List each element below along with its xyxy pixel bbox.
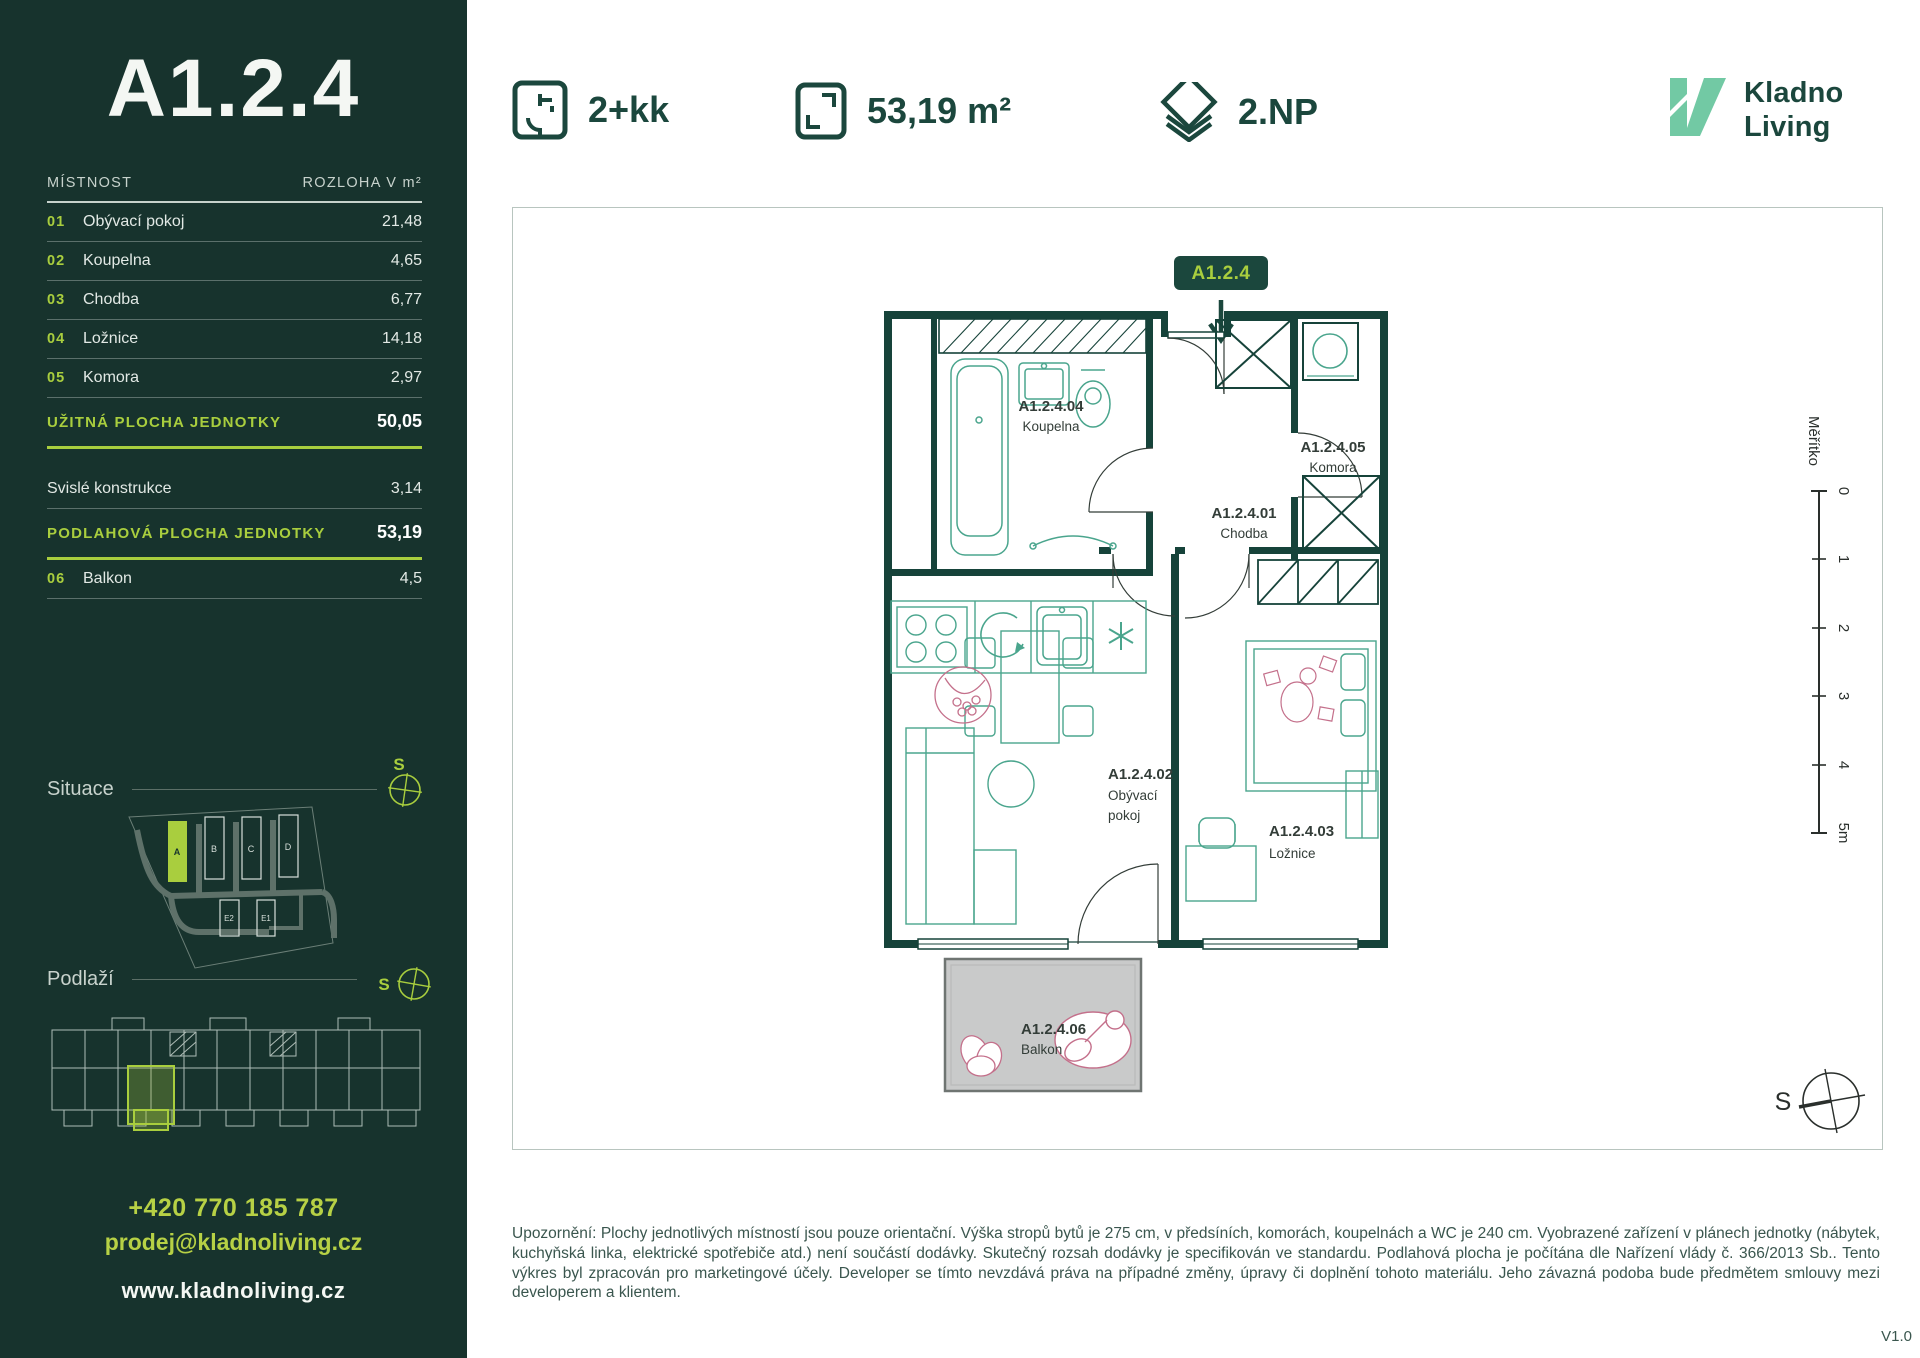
- svg-text:4: 4: [1835, 761, 1852, 769]
- brand-line1: Kladno: [1744, 76, 1843, 110]
- table-row: 03 Chodba 6,77: [47, 281, 422, 320]
- row-name: Obývací pokoj: [83, 213, 184, 231]
- floor-outline: [52, 1018, 420, 1126]
- floor-area-table: Svislé konstrukce 3,14 PODLAHOVÁ PLOCHA …: [47, 470, 422, 599]
- bathtub: [951, 359, 1008, 555]
- stairwell-hatch: [170, 1032, 296, 1056]
- svg-text:B: B: [211, 844, 217, 854]
- svg-text:A1.2.4.05: A1.2.4.05: [1300, 439, 1365, 456]
- dishwasher-symbol: [981, 613, 1025, 657]
- area-value: 53,19 m²: [867, 90, 1011, 132]
- svg-text:Balkon: Balkon: [1021, 1042, 1062, 1057]
- svg-text:Koupelna: Koupelna: [1022, 419, 1080, 434]
- svg-text:Ložnice: Ložnice: [1269, 846, 1316, 861]
- bedroom-wardrobe: [1346, 771, 1378, 838]
- row-num: 05: [47, 370, 83, 386]
- site-roads: [137, 820, 334, 938]
- row-name: Koupelna: [83, 252, 151, 270]
- table-row: 05 Komora 2,97: [47, 359, 422, 398]
- svg-text:A1.2.4.04: A1.2.4.04: [1018, 398, 1084, 415]
- floorplan-canvas: A1.2.4: [512, 207, 1883, 1150]
- row-num: 06: [47, 571, 83, 587]
- bed: [1246, 641, 1376, 791]
- email-link[interactable]: prodej@kladnoliving.cz: [0, 1229, 467, 1256]
- fridge-snowflake: [1109, 622, 1133, 650]
- website-link[interactable]: www.kladnoliving.cz: [0, 1278, 467, 1304]
- area-icon: [795, 82, 847, 140]
- highlighted-unit: [128, 1066, 174, 1130]
- vertical-structures-row: Svislé konstrukce 3,14: [47, 470, 422, 509]
- svg-text:2: 2: [1835, 624, 1852, 632]
- version-label: V1.0: [1881, 1328, 1912, 1345]
- balcony-door: [1068, 864, 1158, 944]
- unit-badge: A1.2.4: [1174, 256, 1268, 340]
- svg-text:A1.2.4: A1.2.4: [1192, 263, 1251, 284]
- total-label: UŽITNÁ PLOCHA JEDNOTKY: [47, 414, 281, 431]
- row-num: 04: [47, 331, 83, 347]
- washing-machine: [1303, 323, 1358, 380]
- brand-logo: Kladno Living: [1668, 76, 1843, 144]
- situace-compass-icon: S: [378, 752, 430, 808]
- windows: [918, 939, 1358, 949]
- row-num: 01: [47, 214, 83, 230]
- floor-area-total-row: PODLAHOVÁ PLOCHA JEDNOTKY 53,19: [47, 509, 422, 560]
- scale-bar: Měřítko 0 1 2 3 4 5m: [1805, 416, 1852, 843]
- podlazi-compass-icon: S: [376, 966, 438, 1002]
- svg-text:A1.2.4.06: A1.2.4.06: [1021, 1021, 1086, 1038]
- row-name: Ložnice: [83, 330, 138, 348]
- situace-label: Situace: [47, 778, 114, 801]
- site-plan: A B C D E2 E1: [115, 800, 350, 980]
- svg-text:A1.2.4.03: A1.2.4.03: [1269, 823, 1334, 840]
- svg-text:A1.2.4.01: A1.2.4.01: [1211, 505, 1276, 522]
- situace-section-header: Situace: [47, 778, 377, 801]
- layout-value: 2+kk: [588, 89, 669, 131]
- disclaimer-text: Upozornění: Plochy jednotlivých místnost…: [512, 1224, 1880, 1303]
- svg-text:S: S: [378, 975, 389, 994]
- row-value: 2,97: [391, 369, 422, 387]
- svg-text:3: 3: [1835, 692, 1852, 700]
- person-guitar-decor: [1055, 1011, 1131, 1068]
- floor-spec: 2.NP: [1160, 82, 1318, 142]
- svg-text:A1.2.4.02: A1.2.4.02: [1108, 766, 1173, 783]
- table-header: MÍSTNOST ROZLOHA V m²: [47, 175, 422, 203]
- phone-number[interactable]: +420 770 185 787: [0, 1194, 467, 1223]
- apartment-floorplan: A1.2.4: [513, 208, 1882, 1149]
- row-value: 6,77: [391, 291, 422, 309]
- svg-text:S: S: [1775, 1088, 1792, 1116]
- kitchen-counter: [891, 601, 1146, 673]
- sofa: [906, 728, 1016, 924]
- divider: [132, 979, 357, 980]
- svg-text:pokoj: pokoj: [1108, 808, 1140, 823]
- area-spec: 53,19 m²: [795, 82, 1011, 140]
- svg-text:5m: 5m: [1835, 823, 1852, 844]
- balcony-row: 06 Balkon 4,5: [47, 560, 422, 599]
- row-name: Komora: [83, 369, 139, 387]
- hall-wardrobe: [1216, 320, 1291, 388]
- col-area-header: ROZLOHA V m²: [302, 175, 422, 191]
- layout-spec: 2+kk: [512, 80, 669, 140]
- row-value: 4,65: [391, 252, 422, 270]
- svg-text:E2: E2: [224, 914, 234, 923]
- compass-icon: S: [1775, 1069, 1865, 1133]
- total-value: 53,19: [377, 522, 422, 543]
- komora-storage: [1303, 476, 1380, 550]
- kitchen-sink: [1037, 607, 1087, 665]
- podlazi-label: Podlaží: [47, 968, 114, 991]
- podlazi-section-header: Podlaží: [47, 968, 357, 991]
- layers-icon: [1160, 82, 1218, 142]
- svg-text:Měřítko: Měřítko: [1805, 416, 1822, 466]
- table-row: 04 Ložnice 14,18: [47, 320, 422, 359]
- brand-line2: Living: [1744, 110, 1843, 144]
- kladno-living-logo-icon: [1668, 76, 1728, 138]
- row-value: 14,18: [382, 330, 422, 348]
- svg-text:Komora: Komora: [1309, 460, 1357, 475]
- total-label: PODLAHOVÁ PLOCHA JEDNOTKY: [47, 525, 326, 542]
- svg-text:A: A: [174, 847, 181, 857]
- svg-text:D: D: [285, 842, 292, 852]
- svg-text:Obývací: Obývací: [1108, 788, 1158, 803]
- stove: [897, 607, 967, 667]
- total-value: 50,05: [377, 411, 422, 432]
- unit-title: A1.2.4: [0, 42, 467, 136]
- svg-text:1: 1: [1835, 555, 1852, 563]
- row-name: Chodba: [83, 291, 139, 309]
- row-value: 21,48: [382, 213, 422, 231]
- svg-text:Chodba: Chodba: [1220, 526, 1268, 541]
- bedroom-wardrobe-row: [1258, 560, 1378, 604]
- svg-text:C: C: [248, 844, 255, 854]
- svg-text:S: S: [393, 755, 404, 774]
- floorplan-icon: [512, 80, 568, 140]
- table-row: 02 Koupelna 4,65: [47, 242, 422, 281]
- sidebar: A1.2.4 MÍSTNOST ROZLOHA V m² 01 Obývací …: [0, 0, 467, 1358]
- table-row: 01 Obývací pokoj 21,48: [47, 203, 422, 242]
- row-value: 3,14: [391, 480, 422, 498]
- bed-decor: [1264, 656, 1337, 722]
- brochure-page: A1.2.4 MÍSTNOST ROZLOHA V m² 01 Obývací …: [0, 0, 1920, 1358]
- round-table: [988, 761, 1034, 807]
- desk-and-chair: [1186, 818, 1256, 901]
- row-name: Balkon: [83, 570, 132, 588]
- row-name: Svislé konstrukce: [47, 480, 172, 498]
- row-num: 02: [47, 253, 83, 269]
- divider: [132, 789, 377, 790]
- row-num: 03: [47, 292, 83, 308]
- brand-name: Kladno Living: [1744, 76, 1843, 144]
- floor-overview-plan: [42, 1002, 432, 1142]
- shaft-hatch: [939, 319, 1146, 353]
- svg-text:E1: E1: [261, 914, 271, 923]
- floor-value: 2.NP: [1238, 91, 1318, 133]
- col-room-header: MÍSTNOST: [47, 175, 132, 191]
- svg-text:0: 0: [1835, 487, 1852, 495]
- row-value: 4,5: [400, 570, 422, 588]
- usable-area-total-row: UŽITNÁ PLOCHA JEDNOTKY 50,05: [47, 398, 422, 449]
- room-area-table: MÍSTNOST ROZLOHA V m² 01 Obývací pokoj 2…: [47, 175, 422, 449]
- hanging-chair-decor: [935, 667, 991, 723]
